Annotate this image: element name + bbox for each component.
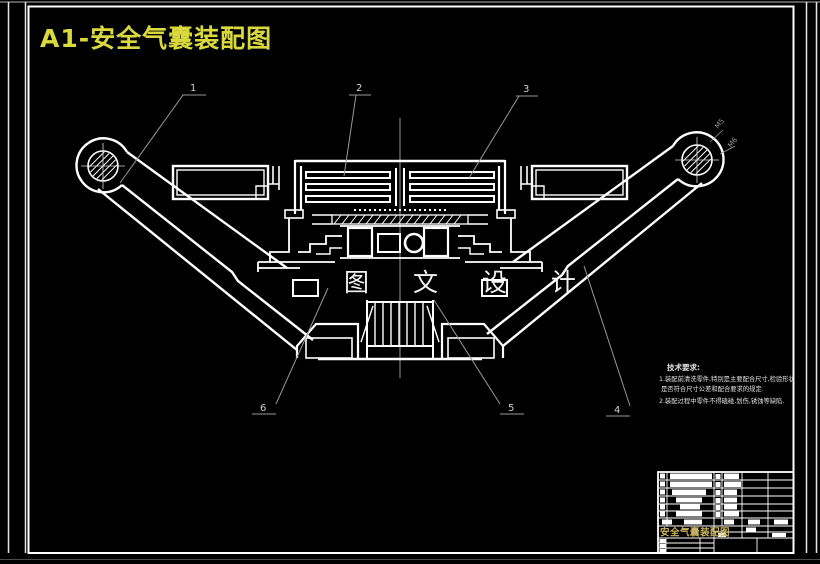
thread-label-m6: M6 xyxy=(726,136,739,150)
title-block-text-blobs xyxy=(660,474,789,554)
part-label-2: 2 xyxy=(356,83,362,94)
part-label-3: 3 xyxy=(523,84,529,95)
watermark-text: 图 文 设 计 xyxy=(344,268,594,297)
rim-right xyxy=(673,132,723,186)
tech-heading: 技术要求: xyxy=(667,362,700,372)
thread-annotations: M5 M6 xyxy=(710,117,740,154)
tech-line-3: 2.装配过程中零件不得磕碰,划伤,锈蚀等缺陷. xyxy=(659,396,784,405)
part-numbers: 1 2 3 6 5 4 xyxy=(190,83,620,416)
part-label-5: 5 xyxy=(508,403,514,414)
tech-requirements: 技术要求: 1.装配前清洗零件,特别是主要配合尺寸,检验形状 是否符合尺寸公差和… xyxy=(659,362,796,405)
tech-line-2: 是否符合尺寸公差和配合要求的规定. xyxy=(661,384,764,393)
rim-left xyxy=(77,138,127,192)
title-block: 安全气囊装配图 xyxy=(658,472,794,553)
part-label-1: 1 xyxy=(190,83,196,94)
page-title: A1-安全气囊装配图 xyxy=(40,24,272,53)
title-block-drawing-title: 安全气囊装配图 xyxy=(660,527,730,539)
part-leaders xyxy=(120,95,630,416)
part-label-6: 6 xyxy=(260,403,266,414)
cad-drawing-sheet: A1-安全气囊装配图 xyxy=(0,0,820,564)
part-label-4: 4 xyxy=(614,405,620,416)
tech-line-1: 1.装配前清洗零件,特别是主要配合尺寸,检验形状 xyxy=(659,374,796,383)
thread-label-m5: M5 xyxy=(713,117,726,130)
cad-canvas: A1-安全气囊装配图 xyxy=(0,0,820,564)
